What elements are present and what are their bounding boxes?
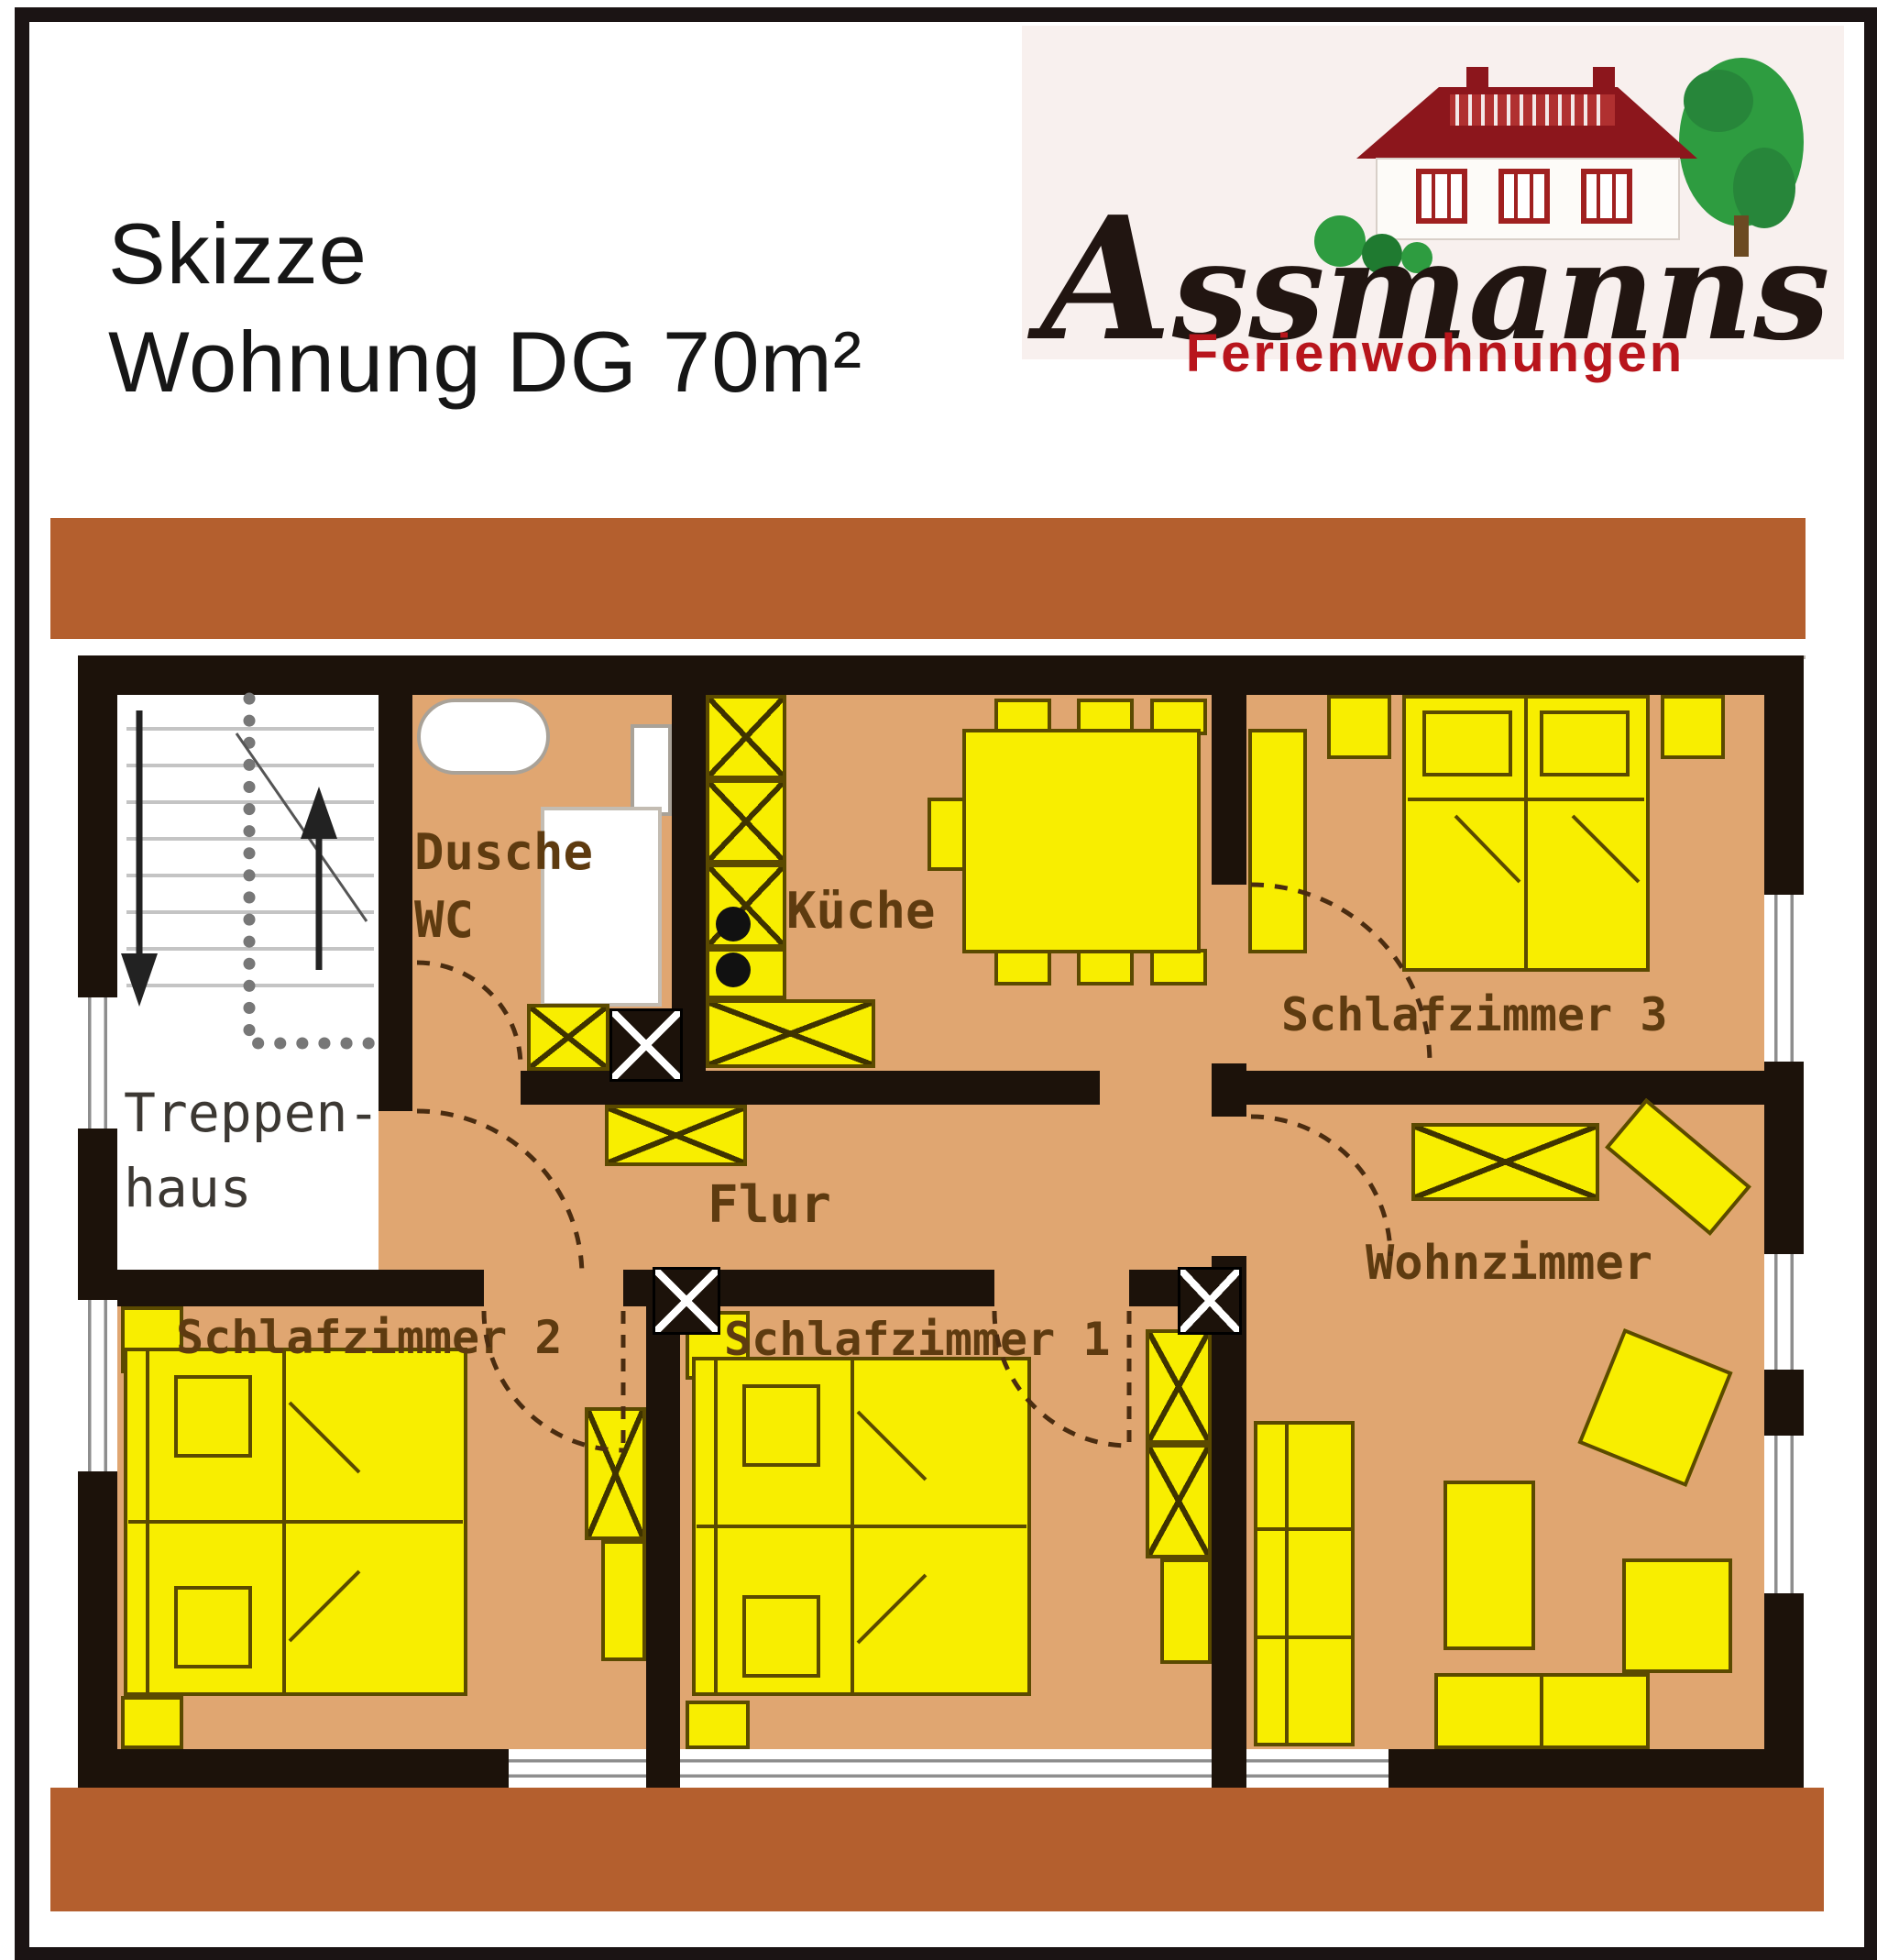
label-kueche: Küche bbox=[786, 882, 936, 940]
dining-table bbox=[962, 729, 1201, 953]
pillow bbox=[742, 1384, 820, 1467]
window-sz2-bottom bbox=[509, 1749, 646, 1788]
nightstand bbox=[121, 1696, 183, 1749]
pillow bbox=[174, 1375, 252, 1458]
kitchen-cabinet-4 bbox=[706, 999, 875, 1068]
brand-tagline: Ferienwohnungen bbox=[1028, 323, 1842, 384]
wall-bedrooms-top-a bbox=[78, 1270, 484, 1306]
hall-cabinet bbox=[605, 1105, 747, 1166]
kitchen-cabinet-2 bbox=[706, 779, 786, 864]
roof-band-top bbox=[50, 518, 1806, 639]
sideboard bbox=[1411, 1123, 1599, 1201]
roof-band-bottom bbox=[50, 1788, 1824, 1911]
floor-plan-sheet: Skizze Wohnung DG 70m² bbox=[0, 0, 1877, 1960]
chimney-cross-icon bbox=[1178, 1267, 1242, 1335]
sofa-long bbox=[1254, 1421, 1355, 1746]
chair bbox=[1150, 949, 1207, 986]
window-wohnzimmer-right-2 bbox=[1764, 1436, 1804, 1593]
wall-sz2-sz1 bbox=[646, 1306, 680, 1788]
wardrobe-sz1-upper bbox=[1146, 1329, 1212, 1444]
window-wohnzimmer-bottom bbox=[1246, 1749, 1389, 1788]
wardrobe-sz2-side bbox=[601, 1540, 646, 1661]
stove-burner-2 bbox=[716, 952, 751, 987]
label-dusche: Dusche bbox=[414, 823, 593, 881]
pillow bbox=[174, 1586, 252, 1668]
label-wohnzimmer: Wohnzimmer bbox=[1366, 1236, 1652, 1291]
label-wc: WC bbox=[414, 891, 474, 949]
wall-kueche-sz3-lower bbox=[1212, 1063, 1246, 1117]
window-sz1-bottom bbox=[680, 1749, 1212, 1788]
chimney-cross-icon bbox=[653, 1267, 720, 1335]
window-wohnzimmer-right-1 bbox=[1764, 1254, 1804, 1370]
wall-flur-top bbox=[521, 1071, 1100, 1105]
chimney-cross-icon bbox=[609, 1008, 683, 1082]
sofa-two-seat bbox=[1434, 1673, 1650, 1749]
window-sz3-right bbox=[1764, 895, 1804, 1062]
wall-outer-top bbox=[78, 655, 1804, 695]
label-flur: Flur bbox=[708, 1175, 831, 1235]
title-line-2: Wohnung DG 70m² bbox=[108, 308, 862, 416]
title-line-1: Skizze bbox=[108, 200, 862, 308]
wall-outer-left bbox=[78, 655, 117, 1788]
label-schlafzimmer-3: Schlafzimmer 3 bbox=[1281, 988, 1667, 1041]
sink bbox=[631, 724, 672, 816]
chair bbox=[928, 798, 966, 871]
label-schlafzimmer-1: Schlafzimmer 1 bbox=[724, 1313, 1110, 1366]
nightstand bbox=[686, 1701, 750, 1749]
window-sz2-left bbox=[78, 1300, 117, 1471]
nightstand bbox=[1327, 695, 1391, 759]
wardrobe-sz1-lower bbox=[1146, 1444, 1212, 1558]
pillow bbox=[1422, 710, 1512, 776]
stove-burner-1 bbox=[716, 907, 751, 941]
armchair bbox=[1622, 1558, 1732, 1673]
label-schlafzimmer-2: Schlafzimmer 2 bbox=[176, 1311, 562, 1364]
window-treppenhaus bbox=[78, 997, 117, 1129]
label-treppenhaus-1: Treppen- bbox=[124, 1082, 379, 1144]
kitchen-cabinet-1 bbox=[706, 695, 786, 779]
wardrobe-sz1-side bbox=[1160, 1558, 1212, 1664]
wall-kueche-sz3-upper bbox=[1212, 655, 1246, 885]
bathtub bbox=[417, 699, 550, 775]
pillow bbox=[1540, 710, 1630, 776]
wall-treppenhaus-right bbox=[379, 655, 412, 1111]
page-title: Skizze Wohnung DG 70m² bbox=[108, 200, 862, 417]
bath-cabinet bbox=[527, 1004, 609, 1071]
wall-wohnzimmer-left bbox=[1212, 1256, 1246, 1788]
coffee-table bbox=[1443, 1481, 1535, 1650]
wall-wohnzimmer-top bbox=[1246, 1071, 1764, 1105]
pillow bbox=[742, 1595, 820, 1678]
wardrobe-sz2 bbox=[585, 1407, 646, 1540]
chair bbox=[994, 949, 1051, 986]
label-treppenhaus-2: haus bbox=[124, 1157, 252, 1219]
wall-outer-right bbox=[1764, 655, 1804, 1788]
nightstand bbox=[1661, 695, 1725, 759]
wardrobe-sz3 bbox=[1248, 729, 1307, 953]
chair bbox=[1077, 949, 1134, 986]
